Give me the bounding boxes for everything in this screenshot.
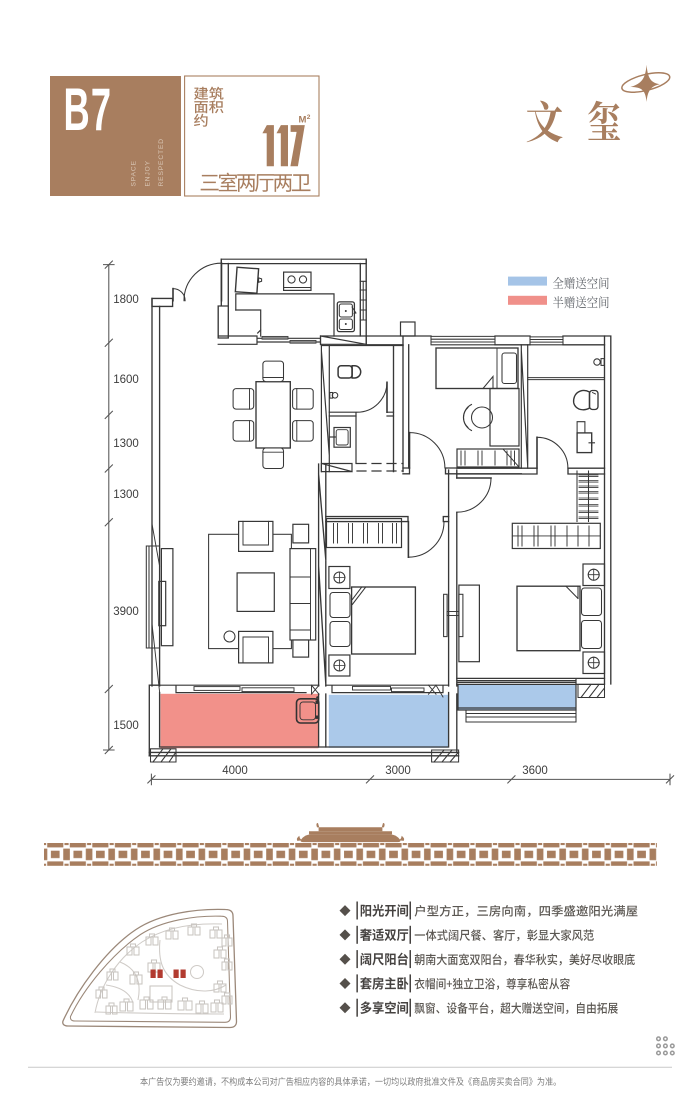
- svg-text:ENJOY: ENJOY: [145, 160, 152, 186]
- svg-text:1800: 1800: [113, 294, 139, 306]
- svg-text:3600: 3600: [522, 765, 548, 777]
- svg-text:3900: 3900: [113, 606, 139, 618]
- svg-text:1300: 1300: [113, 489, 139, 501]
- svg-text:SPACE: SPACE: [131, 160, 138, 186]
- svg-text:B7: B7: [64, 75, 113, 143]
- svg-text:1600: 1600: [113, 374, 139, 386]
- svg-text:4000: 4000: [222, 765, 248, 777]
- svg-text:RESPECTED: RESPECTED: [158, 138, 165, 186]
- svg-text:2: 2: [307, 114, 311, 121]
- svg-text:1300: 1300: [113, 438, 139, 450]
- svg-text:M: M: [299, 115, 307, 126]
- svg-text:1500: 1500: [113, 720, 139, 732]
- svg-text:3000: 3000: [385, 765, 411, 777]
